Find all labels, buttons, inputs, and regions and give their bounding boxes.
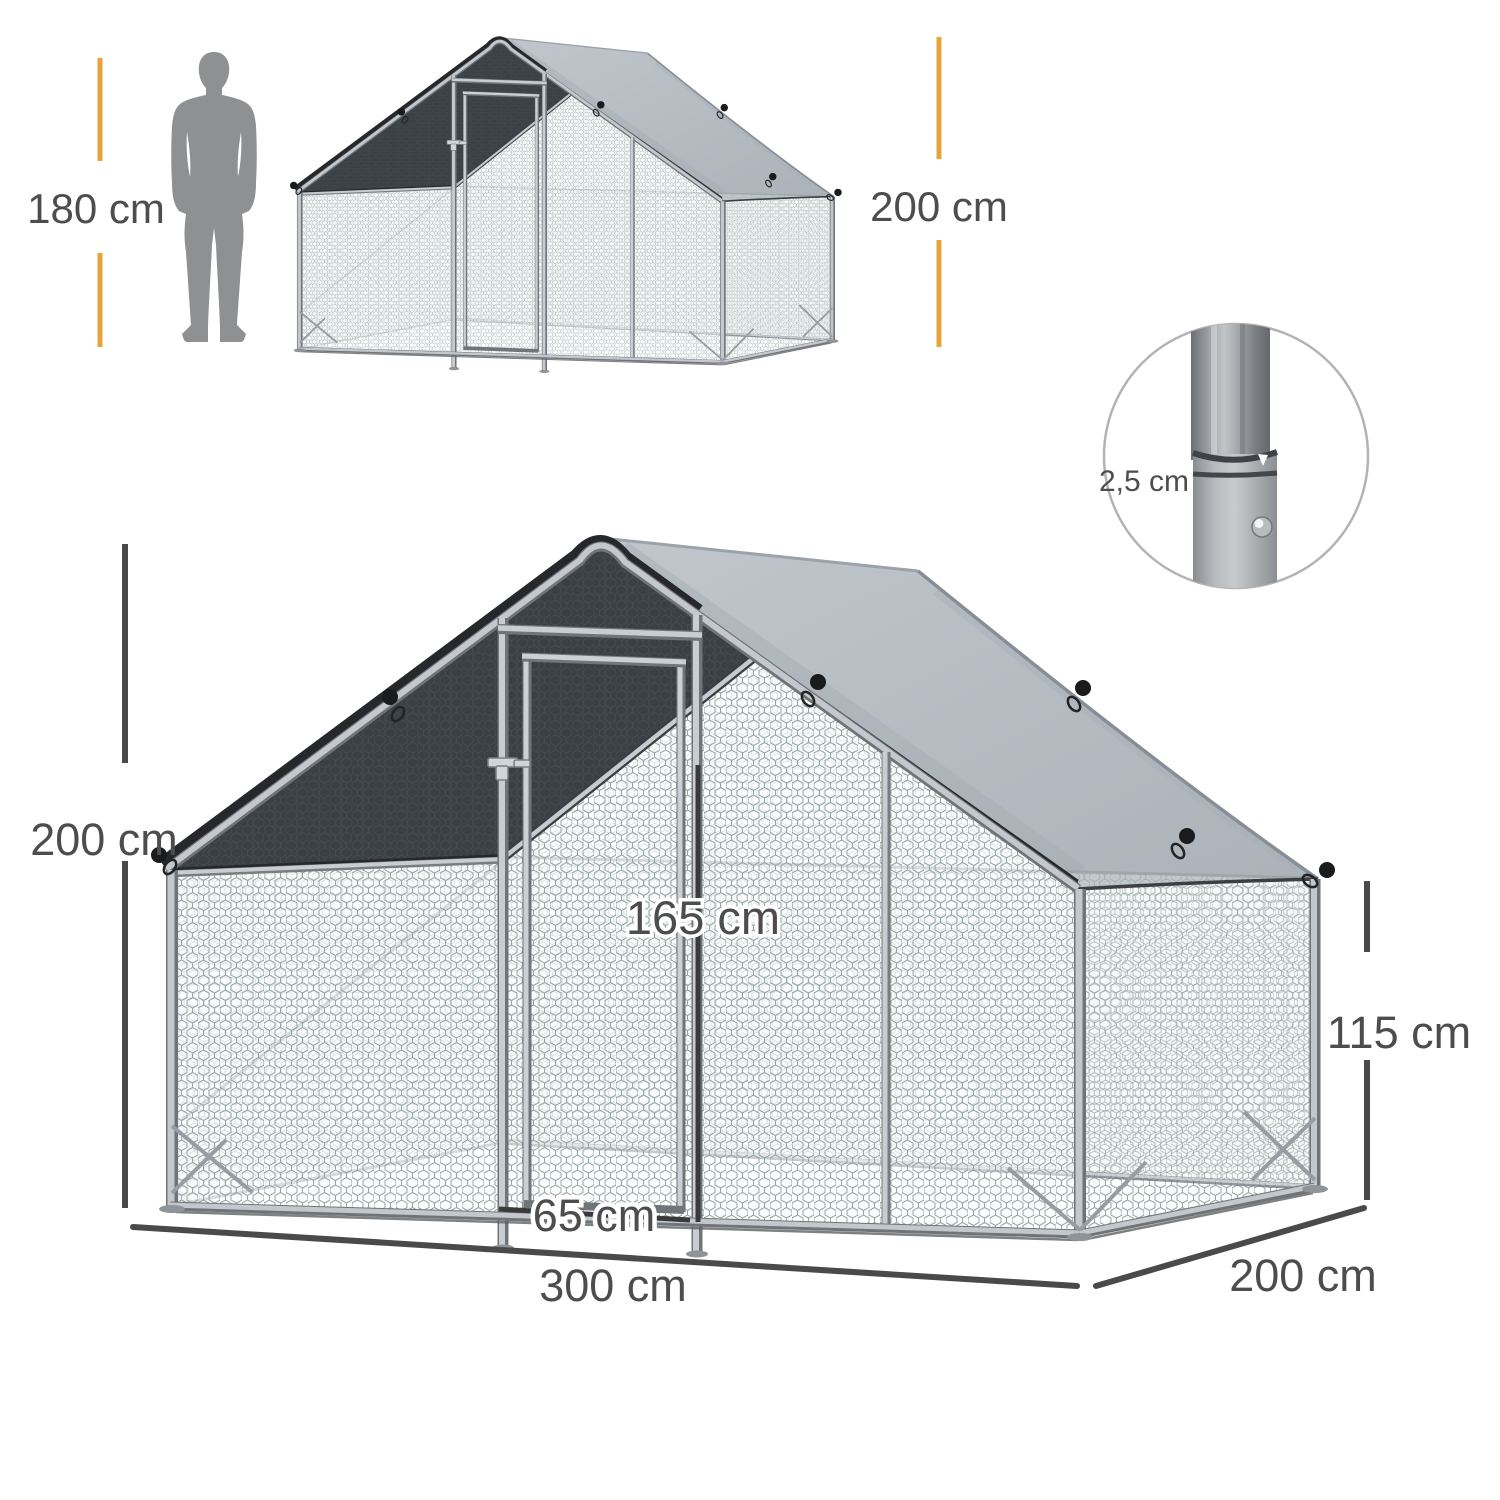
svg-text:200 cm: 200 cm — [30, 814, 178, 865]
svg-text:2,5 cm: 2,5 cm — [1099, 465, 1189, 498]
svg-text:200 cm: 200 cm — [870, 183, 1008, 230]
svg-text:200 cm: 200 cm — [1229, 1250, 1377, 1301]
svg-text:65 cm: 65 cm — [533, 1190, 656, 1241]
svg-text:115 cm: 115 cm — [1327, 1007, 1471, 1058]
svg-text:180 cm: 180 cm — [27, 185, 165, 232]
svg-text:300 cm: 300 cm — [539, 1260, 687, 1311]
svg-text:165 cm: 165 cm — [626, 891, 780, 944]
